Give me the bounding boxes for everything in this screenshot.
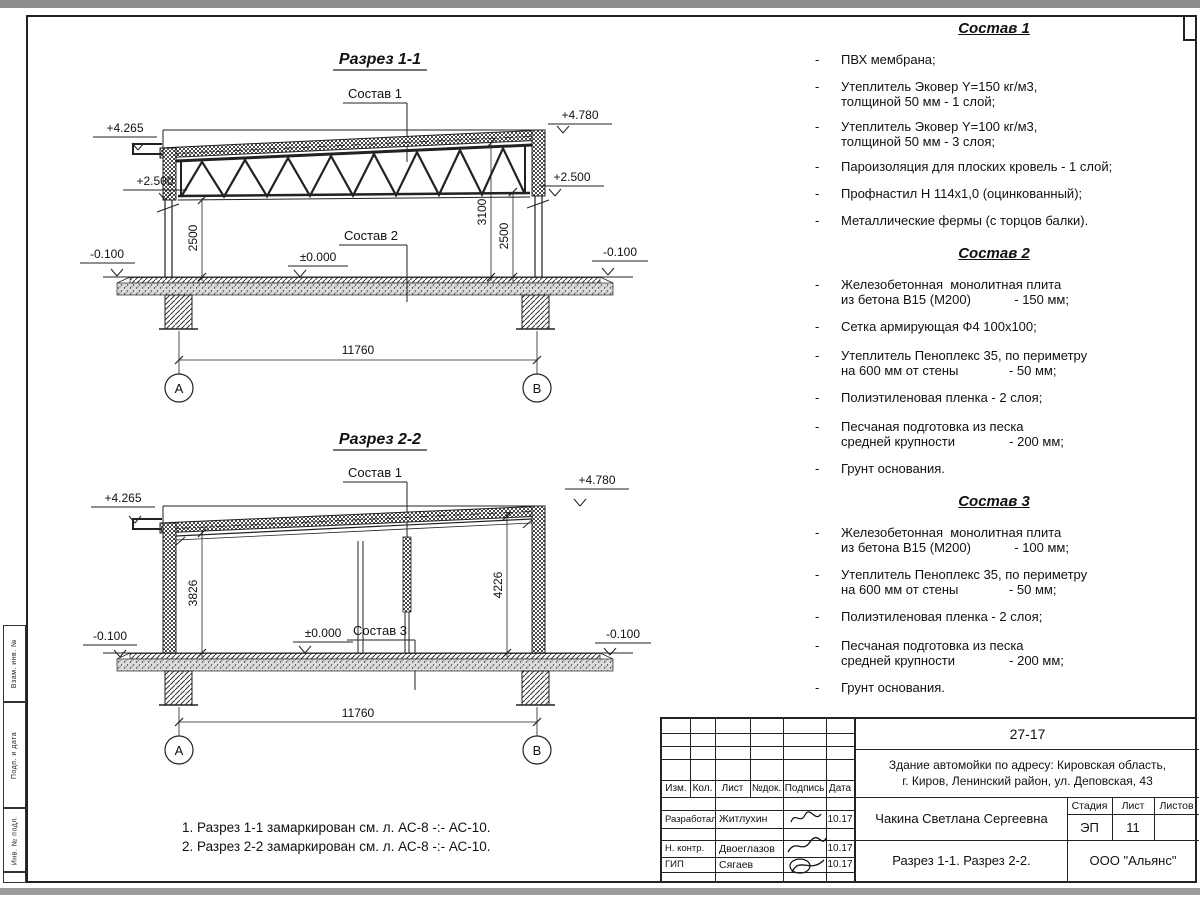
section2-callout-sostav3: Состав 3 bbox=[353, 623, 407, 638]
signature bbox=[785, 808, 825, 829]
scan-edge-top bbox=[0, 0, 1200, 8]
dash-bullet bbox=[815, 419, 841, 449]
elevation-mark-zero: ±0.000 bbox=[288, 250, 348, 277]
signer-role: ГИП bbox=[663, 857, 715, 872]
list-item: Пароизоляция для плоских кровель - 1 сло… bbox=[793, 159, 1195, 174]
col-header-list: Лист bbox=[715, 780, 750, 797]
svg-text:+4.265: +4.265 bbox=[106, 121, 143, 135]
dash-bullet bbox=[815, 319, 841, 334]
col-header-kol: Кол. bbox=[690, 780, 715, 797]
sheets-label: Листов bbox=[1154, 797, 1199, 814]
section-1-1-drawing: Разрез 1-1 Состав 1 bbox=[75, 40, 715, 412]
signer-date: 10.17 bbox=[826, 840, 854, 857]
elevation-mark-ground-left: -0.100 bbox=[80, 247, 135, 276]
composition-1-heading: Состав 1 bbox=[793, 20, 1195, 37]
svg-text:А: А bbox=[175, 381, 184, 396]
list-item: Полиэтиленовая пленка - 2 слоя; bbox=[793, 390, 1195, 405]
composition-3-heading: Состав 3 bbox=[793, 493, 1195, 510]
signature bbox=[784, 854, 828, 878]
dim-span-11760: 11760 bbox=[175, 331, 541, 374]
object-name: Здание автомойки по адресу: Кировская об… bbox=[856, 749, 1199, 797]
dim-2500-left: 2500 bbox=[186, 196, 206, 281]
margin-box-1-label: Взам. инв. № bbox=[11, 639, 18, 688]
section2-callout-sostav1: Состав 1 bbox=[348, 465, 402, 480]
svg-text:+4.265: +4.265 bbox=[104, 491, 141, 505]
svg-text:А: А bbox=[175, 743, 184, 758]
margin-box-4 bbox=[3, 872, 26, 883]
notes: 1. Разрез 1-1 замаркирован см. л. АС-8 -… bbox=[182, 818, 491, 856]
dim-2500-right: 2500 bbox=[497, 188, 517, 281]
scan-edge-bottom bbox=[0, 888, 1200, 895]
composition-lists: Состав 1 ПВХ мембрана; Утеплитель Эковер… bbox=[793, 20, 1195, 707]
elevation-mark-top-right: +4.780 bbox=[548, 108, 612, 133]
object-name-line1: Здание автомойки по адресу: Кировская об… bbox=[889, 757, 1166, 773]
svg-text:3826: 3826 bbox=[186, 579, 200, 606]
composition-2: Состав 2 Железобетонная монолитная плита… bbox=[793, 245, 1195, 476]
sheet-title: Разрез 1-1. Разрез 2-2. bbox=[856, 840, 1067, 881]
dim-4226-right: 4226 bbox=[491, 512, 511, 657]
svg-text:+4.780: +4.780 bbox=[578, 473, 615, 487]
svg-text:В: В bbox=[533, 743, 542, 758]
axis-bubble-a-2: А bbox=[165, 736, 193, 764]
sheet-label: Лист bbox=[1112, 797, 1154, 814]
dash-bullet bbox=[815, 79, 841, 109]
signer-role: Н. контр. bbox=[663, 840, 715, 857]
svg-text:±0.000: ±0.000 bbox=[305, 626, 342, 640]
list-item: Железобетонная монолитная плитаиз бетона… bbox=[793, 525, 1195, 555]
svg-text:11760: 11760 bbox=[342, 706, 375, 720]
svg-text:+2.500: +2.500 bbox=[136, 174, 173, 188]
svg-text:2500: 2500 bbox=[186, 224, 200, 251]
dim-3826-left: 3826 bbox=[186, 529, 206, 657]
list-item: Песчаная подготовка из пескасредней круп… bbox=[793, 419, 1195, 449]
svg-text:-0.100: -0.100 bbox=[90, 247, 124, 261]
list-item: Утеплитель Эковер Y=100 кг/м3,толщиной 5… bbox=[793, 119, 1195, 149]
dim-span-11760-2: 11760 bbox=[175, 706, 541, 736]
note-2: 2. Разрез 2-2 замаркирован см. л. АС-8 -… bbox=[182, 837, 491, 856]
dash-bullet bbox=[815, 277, 841, 307]
list-item: Грунт основания. bbox=[793, 680, 1195, 695]
note-1: 1. Разрез 1-1 замаркирован см. л. АС-8 -… bbox=[182, 818, 491, 837]
margin-box-3: Инв. № подл. bbox=[3, 808, 26, 872]
axis-bubble-b: В bbox=[523, 374, 551, 402]
composition-3: Состав 3 Железобетонная монолитная плита… bbox=[793, 493, 1195, 695]
signer-name: Житлухин bbox=[716, 810, 782, 828]
col-header-date: Дата bbox=[826, 780, 854, 797]
svg-text:В: В bbox=[533, 381, 542, 396]
stage-label: Стадия bbox=[1067, 797, 1112, 814]
drawing-sheet: Взам. инв. № Подп. и дата Инв. № подл. Р… bbox=[0, 0, 1200, 900]
section1-title: Разрез 1-1 bbox=[339, 51, 421, 68]
dash-bullet bbox=[815, 680, 841, 695]
list-item: Утеплитель Пеноплекс 35, по периметруна … bbox=[793, 567, 1195, 597]
svg-text:4226: 4226 bbox=[491, 571, 505, 598]
svg-text:+2.500: +2.500 bbox=[553, 170, 590, 184]
company-name: ООО "Альянс" bbox=[1067, 840, 1199, 881]
svg-text:11760: 11760 bbox=[342, 343, 375, 357]
signer-name: Двоеглазов bbox=[716, 840, 782, 857]
list-item: Грунт основания. bbox=[793, 461, 1195, 476]
dim-3100-mid: 3100 bbox=[475, 139, 495, 281]
composition-2-heading: Состав 2 bbox=[793, 245, 1195, 262]
list-item: Утеплитель Пеноплекс 35, по периметруна … bbox=[793, 348, 1195, 378]
col-header-izm: Изм. bbox=[662, 780, 690, 797]
col-header-doc: №док. bbox=[750, 780, 783, 797]
dash-bullet bbox=[815, 609, 841, 624]
customer-name: Чакина Светлана Сергеевна bbox=[856, 797, 1067, 840]
list-item: Профнастил Н 114х1,0 (оцинкованный); bbox=[793, 186, 1195, 201]
dash-bullet bbox=[815, 638, 841, 668]
elevation-mark-zero-2: ±0.000 bbox=[293, 626, 353, 653]
dash-bullet bbox=[815, 186, 841, 201]
dash-bullet bbox=[815, 390, 841, 405]
section1-callout-sostav2: Состав 2 bbox=[344, 228, 398, 243]
list-item: Песчаная подготовка из пескасредней круп… bbox=[793, 638, 1195, 668]
elevation-mark-ground-right-2: -0.100 bbox=[595, 627, 651, 655]
section2-title: Разрез 2-2 bbox=[339, 431, 421, 448]
svg-text:-0.100: -0.100 bbox=[93, 629, 127, 643]
dash-bullet bbox=[815, 52, 841, 67]
stage-value: ЭП bbox=[1067, 814, 1112, 840]
signer-name: Сягаев bbox=[716, 857, 782, 872]
svg-text:3100: 3100 bbox=[475, 198, 489, 225]
svg-text:2500: 2500 bbox=[497, 222, 511, 249]
elevation-mark-ground-right: -0.100 bbox=[592, 245, 648, 275]
dash-bullet bbox=[815, 213, 841, 228]
doc-number: 27-17 bbox=[856, 719, 1199, 749]
dash-bullet bbox=[815, 525, 841, 555]
composition-1: Состав 1 ПВХ мембрана; Утеплитель Эковер… bbox=[793, 20, 1195, 228]
svg-text:-0.100: -0.100 bbox=[603, 245, 637, 259]
dash-bullet bbox=[815, 159, 841, 174]
section-2-2-drawing: Разрез 2-2 Состав 1 bbox=[75, 420, 715, 780]
list-item: Полиэтиленовая пленка - 2 слоя; bbox=[793, 609, 1195, 624]
axis-bubble-a: А bbox=[165, 374, 193, 402]
svg-text:±0.000: ±0.000 bbox=[300, 250, 337, 264]
list-item: Сетка армирующая Ф4 100х100; bbox=[793, 319, 1195, 334]
dash-bullet bbox=[815, 567, 841, 597]
col-header-sign: Подпись bbox=[783, 780, 826, 797]
object-name-line2: г. Киров, Ленинский район, ул. Деповская… bbox=[902, 773, 1153, 789]
list-item: Утеплитель Эковер Y=150 кг/м3,толщиной 5… bbox=[793, 79, 1195, 109]
margin-box-2-label: Подп. и дата bbox=[11, 731, 18, 778]
margin-box-1: Взам. инв. № bbox=[3, 625, 26, 702]
signer-date: 10.17 bbox=[826, 810, 854, 828]
elevation-mark-top-right-2: +4.780 bbox=[565, 473, 629, 506]
signer-role: Разработал bbox=[663, 810, 715, 828]
elevation-mark-mid-right: +2.500 bbox=[540, 170, 604, 196]
list-item: Металлические фермы (с торцов балки). bbox=[793, 213, 1195, 228]
axis-bubble-b-2: В bbox=[523, 736, 551, 764]
list-item: Железобетонная монолитная плитаиз бетона… bbox=[793, 277, 1195, 307]
svg-text:+4.780: +4.780 bbox=[561, 108, 598, 122]
elevation-mark-top-left: +4.265 bbox=[93, 121, 157, 150]
signer-date: 10.17 bbox=[826, 857, 854, 872]
dash-bullet bbox=[815, 348, 841, 378]
margin-box-3-label: Инв. № подл. bbox=[11, 815, 18, 865]
elevation-mark-mid-left: +2.500 bbox=[123, 174, 187, 200]
title-block: Изм. Кол. Лист №док. Подпись Дата Разраб… bbox=[660, 717, 1197, 883]
list-item: ПВХ мембрана; bbox=[793, 52, 1195, 67]
section1-callout-sostav1: Состав 1 bbox=[348, 86, 402, 101]
sheets-total bbox=[1154, 814, 1199, 840]
dash-bullet bbox=[815, 119, 841, 149]
sheet-number: 11 bbox=[1112, 814, 1154, 840]
svg-text:-0.100: -0.100 bbox=[606, 627, 640, 641]
margin-box-2: Подп. и дата bbox=[3, 702, 26, 808]
dash-bullet bbox=[815, 461, 841, 476]
